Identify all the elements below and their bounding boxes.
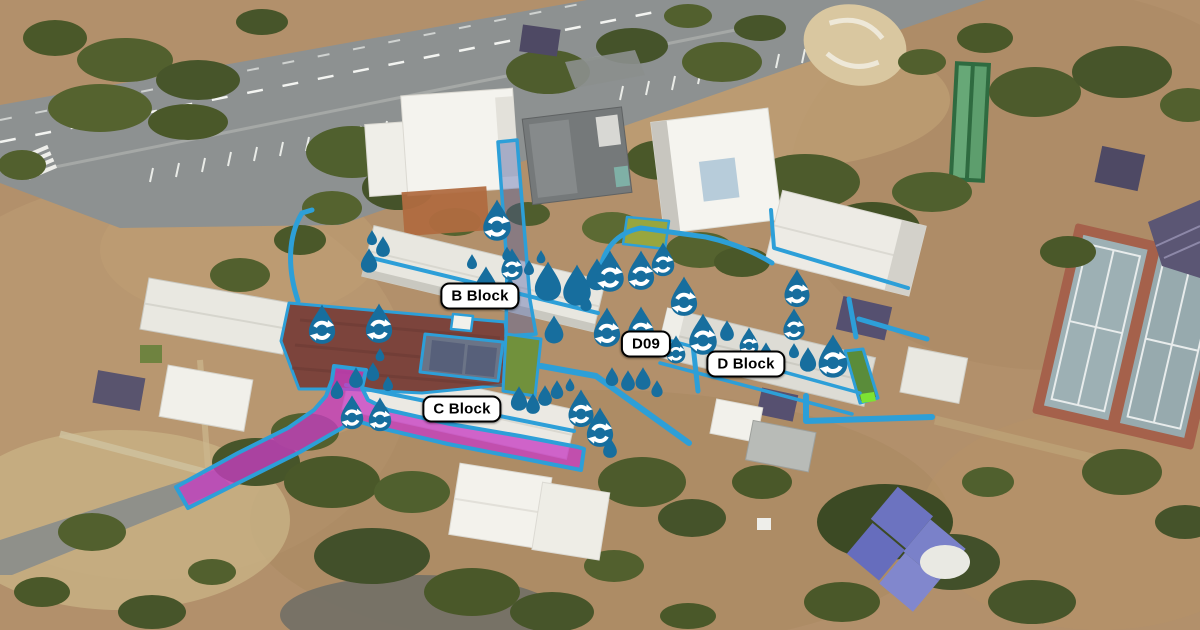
map-label-c-block: C Block [422, 396, 501, 423]
recycle-drop-icon [593, 249, 627, 293]
campus-map: B BlockC BlockD09D Block [0, 0, 1200, 630]
recycle-drop-icon [591, 306, 624, 348]
recycle-drop-icon [668, 275, 701, 317]
recycle-drop-icon [366, 396, 394, 432]
water-drop-icon [348, 367, 365, 389]
water-drop-icon [382, 376, 394, 392]
recycle-drop-icon [338, 394, 366, 430]
water-drop-icon [365, 362, 381, 382]
water-drop-icon [719, 320, 736, 342]
recycle-drop-icon [781, 307, 808, 341]
recycle-drop-icon [363, 302, 396, 344]
water-drop-icon [579, 294, 593, 312]
water-drop-icon [359, 247, 379, 273]
map-label-d-block: D Block [706, 351, 785, 378]
water-drop-icon [549, 380, 565, 400]
map-label-b-block: B Block [440, 283, 519, 310]
recycle-drop-icon [480, 198, 514, 242]
recycle-drop-icon [306, 303, 339, 345]
water-drop-icon [602, 437, 619, 459]
water-drop-icon [543, 314, 566, 344]
water-drop-icon [375, 348, 386, 362]
recycle-drop-icon [649, 241, 677, 277]
recycle-drop-icon [815, 333, 851, 379]
recycle-drop-icon [782, 268, 813, 308]
map-label-d09: D09 [621, 331, 671, 358]
water-drop-icon [604, 367, 620, 387]
water-drop-icon [650, 380, 664, 398]
